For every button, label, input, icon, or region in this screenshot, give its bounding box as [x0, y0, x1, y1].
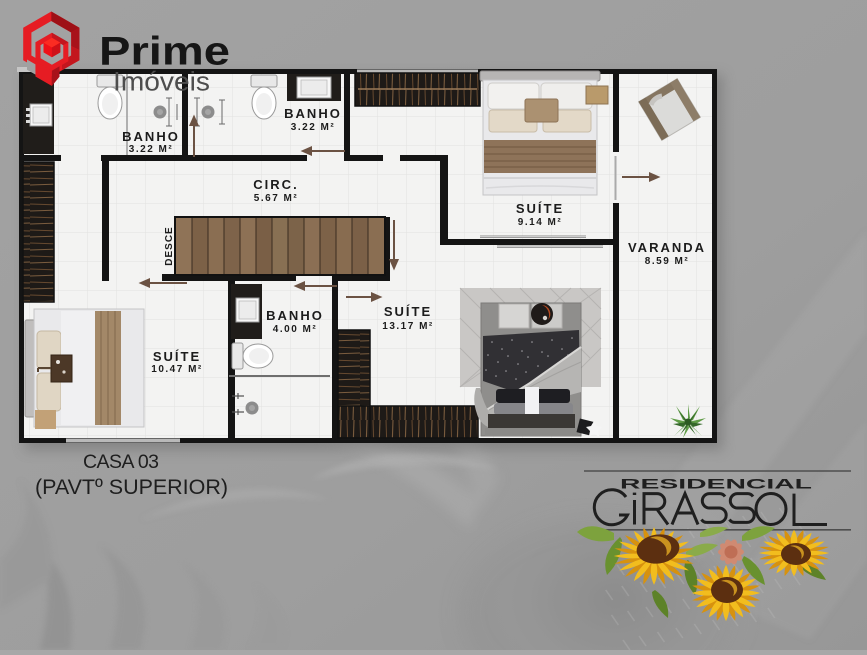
svg-text:5.67 M²: 5.67 M²: [254, 193, 298, 204]
svg-text:8.59 M²: 8.59 M²: [645, 256, 689, 267]
svg-text:SUÍTE: SUÍTE: [516, 201, 564, 216]
svg-text:BANHO: BANHO: [284, 106, 342, 121]
svg-text:13.17 M²: 13.17 M²: [382, 321, 433, 332]
svg-text:9.14 M²: 9.14 M²: [518, 217, 562, 228]
svg-text:SUÍTE: SUÍTE: [384, 304, 432, 319]
svg-text:10.47 M²: 10.47 M²: [151, 364, 202, 375]
svg-text:CIRC.: CIRC.: [253, 177, 298, 192]
svg-text:Imóveis: Imóveis: [113, 67, 210, 97]
svg-text:VARANDA: VARANDA: [628, 240, 706, 255]
svg-text:3.22 M²: 3.22 M²: [129, 144, 173, 155]
svg-text:CASA 03: CASA 03: [83, 451, 159, 473]
svg-text:BANHO: BANHO: [266, 308, 324, 323]
svg-text:BANHO: BANHO: [122, 129, 180, 144]
svg-text:4.00 M²: 4.00 M²: [273, 324, 317, 335]
svg-text:3.22 M²: 3.22 M²: [291, 122, 335, 133]
svg-text:RESIDENCIAL: RESIDENCIAL: [620, 477, 812, 492]
svg-text:DESCE: DESCE: [164, 226, 175, 265]
svg-text:(PAVTº SUPERIOR): (PAVTº SUPERIOR): [35, 475, 228, 499]
svg-text:SUÍTE: SUÍTE: [153, 349, 201, 364]
